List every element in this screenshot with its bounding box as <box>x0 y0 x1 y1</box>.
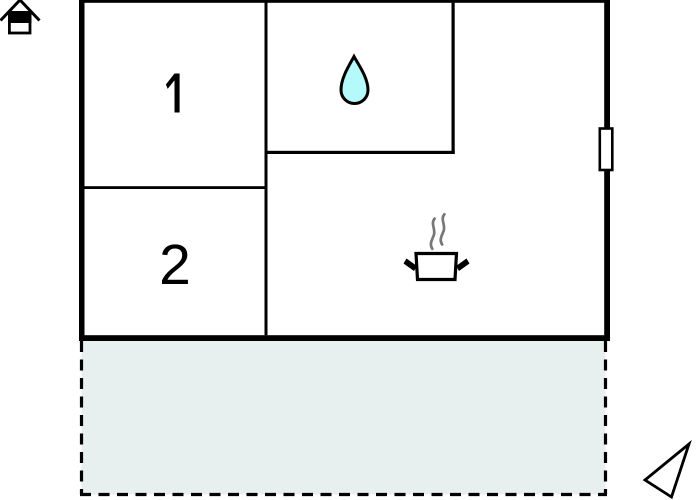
svg-text:2: 2 <box>159 233 191 297</box>
